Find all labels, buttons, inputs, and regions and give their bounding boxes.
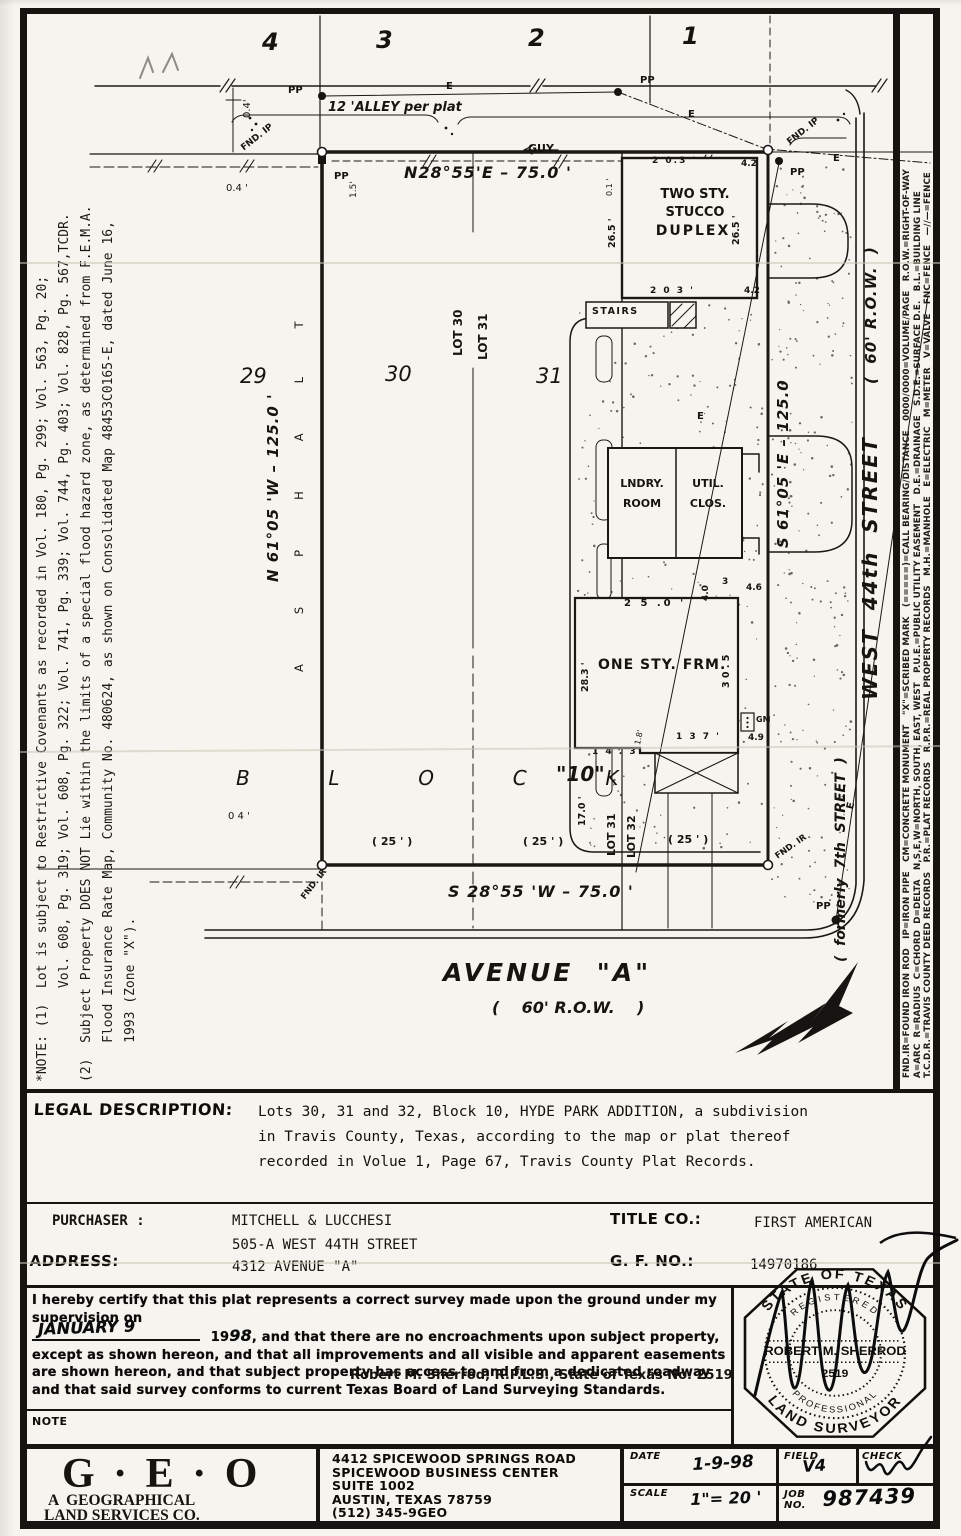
note-line: Vol. 608, Pg. 319; Vol. 608, Pg. 322; Vo… <box>54 52 76 1082</box>
e-label: E <box>697 412 704 422</box>
dim-265: 26.5 ' <box>608 218 618 248</box>
title-co-label: TITLE CO.: <box>610 1212 701 1227</box>
lot-number-31: 31 <box>536 366 563 387</box>
lot31-line-label: LOT 31 <box>477 314 489 360</box>
note-line: (2) Subject Property DOES NOT Lie within… <box>76 52 98 1082</box>
cert-year-handwritten: 98 <box>229 1326 252 1345</box>
dim-01: 0.1 ' <box>606 179 614 196</box>
fnd-ip-label: FND. IP <box>240 123 275 153</box>
title-co-value: FIRST AMERICAN <box>754 1216 872 1230</box>
lot-number-4: 4 <box>262 30 279 54</box>
date-value: 1-9-98 <box>692 1454 754 1474</box>
avenue-a-label: AVENUE "A" <box>443 960 651 985</box>
firm-address-line: 4412 SPICEWOOD SPRINGS ROAD <box>332 1452 576 1466</box>
address-value-1: 505-A WEST 44TH STREET <box>232 1238 417 1252</box>
field-value: V4 <box>802 1457 827 1475</box>
lot31-line-label: LOT 31 <box>606 813 617 856</box>
gf-no-label: G. F. NO.: <box>610 1254 694 1269</box>
lndry-label-2: ROOM <box>610 498 674 509</box>
scale-value: 1"= 20 ' <box>690 1490 762 1508</box>
geo-sub-2: LAND SERVICES CO. <box>44 1508 200 1524</box>
dim-04-bot: 0 4 ' <box>228 812 250 822</box>
legal-line: recorded in Volue 1, Page 67, Travis Cou… <box>258 1150 808 1175</box>
dim-42: 4.2 <box>741 160 757 169</box>
dim-46: 4.6 <box>746 584 762 593</box>
survey-plat-sheet: 43210.4'PPEPP12 'ALLEY per platEFND. IPF… <box>0 0 961 1536</box>
legal-description-section: LEGAL DESCRIPTION: Lots 30, 31 and 32, B… <box>0 1092 933 1202</box>
cert-date-blank: JANUARY 9 <box>32 1327 200 1341</box>
address-label: ADDRESS: <box>29 1254 119 1269</box>
dim-283: 28.3 ' <box>581 662 591 692</box>
firm-address-line: SPICEWOOD BUSINESS CENTER <box>332 1466 576 1480</box>
dim-170: 17.0 ' <box>578 796 588 826</box>
west-44th-row-label: ( 60' R.O.W. ) <box>864 246 879 384</box>
lot-number-1: 1 <box>682 24 699 48</box>
legal-line: in Travis County, Texas, according to th… <box>258 1125 808 1150</box>
date-label: DATE <box>630 1452 661 1462</box>
e-label: E <box>446 82 453 92</box>
pp-label: PP <box>816 902 831 912</box>
duplex-label-1: TWO STY. <box>640 188 750 201</box>
scale-label: SCALE <box>630 1489 668 1499</box>
legal-description-label: LEGAL DESCRIPTION: <box>33 1102 233 1118</box>
dim-40: 4.0 <box>702 585 711 601</box>
lot-width: ( 25 ' ) <box>523 836 563 847</box>
lot-width: ( 25 ' ) <box>372 836 412 847</box>
check-label: CHECK <box>862 1452 902 1462</box>
stairs-label: STAIRS <box>592 307 639 317</box>
fnd-ir-label: FND. IR <box>774 833 808 861</box>
surveyor-name-line: Robert M. Sherrod, R.P.L.S., State of Te… <box>350 1368 733 1383</box>
guy-label: GUY <box>528 143 554 154</box>
pp-label: PP <box>640 76 655 86</box>
one-sty-label: ONE STY. FRM. <box>598 658 726 672</box>
dim-49: 4.9 <box>748 734 764 743</box>
firm-address: 4412 SPICEWOOD SPRINGS ROAD SPICEWOOD BU… <box>332 1452 576 1520</box>
gm-label: GM <box>756 716 771 724</box>
legend: FND.IR=FOUND IRON ROD IP=IRON PIPE CM=CO… <box>902 36 934 1078</box>
address-value-2: 4312 AVENUE "A" <box>232 1260 358 1274</box>
util-label-1: UTIL. <box>678 478 738 489</box>
job-no-value: 987439 <box>822 1486 916 1510</box>
asphalt-label: ASPHALT <box>294 272 306 672</box>
lot30-line-label: LOT 30 <box>452 310 464 356</box>
dim-250: 2 5 .0 ' <box>624 599 686 609</box>
dim-18: 1.8' <box>634 729 645 745</box>
geo-logo: G · E · O <box>62 1453 261 1495</box>
bearing-top: N28°55'E – 75.0 ' <box>404 165 572 181</box>
dim-137: 1 3 7 ' <box>676 733 721 742</box>
purchaser-value: MITCHELL & LUCCHESI <box>232 1214 392 1228</box>
firm-address-line: SUITE 1002 <box>332 1479 576 1493</box>
util-label-2: CLOS. <box>678 498 738 509</box>
dim-305: 3 0 . 5 <box>722 655 732 688</box>
block-number: "10" <box>556 764 605 784</box>
note-line: Flood Insurance Rate Map, Community No. … <box>98 52 120 1082</box>
legend-line: FND.IR=FOUND IRON ROD IP=IRON PIPE CM=CO… <box>902 36 913 1078</box>
bearing-bottom: S 28°55 'W – 75.0 ' <box>448 884 634 900</box>
margin-notes: *NOTE: (1) Lot is subject to Restrictive… <box>32 52 142 1082</box>
note-line: *NOTE: (1) Lot is subject to Restrictive… <box>32 52 54 1082</box>
legal-description-text: Lots 30, 31 and 32, Block 10, HYDE PARK … <box>258 1100 808 1175</box>
dim-143: 1 4 . 3 <box>592 748 638 757</box>
dim-04-left: 0.4 ' <box>226 184 248 194</box>
dim-3: 3 <box>722 578 728 587</box>
gf-no-value: 14970186 <box>750 1258 817 1272</box>
avenue-a-row: ( 60' R.O.W. ) <box>492 1000 644 1016</box>
note-line: 1993 (Zone "X"). <box>120 52 142 1082</box>
dim-15: 1.5' <box>350 181 359 198</box>
pp-label: PP <box>790 168 805 178</box>
lot-number-30: 30 <box>385 364 412 385</box>
fnd-ir-label: FND. IR <box>300 868 329 902</box>
firm-address-line: AUSTIN, TEXAS 78759 <box>332 1493 576 1507</box>
formerly-7th-label: ( formerly 7th STREET ) <box>834 757 848 962</box>
lot-number-2: 2 <box>528 26 545 50</box>
parties-section: PURCHASER : MITCHELL & LUCCHESI 505-A WE… <box>0 1204 933 1286</box>
firm-address-line: (512) 345-9GEO <box>332 1506 576 1520</box>
e-label: E <box>833 154 840 164</box>
fnd-ip-label: FND. IP <box>786 117 821 147</box>
dim-203-bot: 2 0 3 ' <box>650 287 695 296</box>
legal-line: Lots 30, 31 and 32, Block 10, HYDE PARK … <box>258 1100 808 1125</box>
lot32-line-label: LOT 32 <box>626 815 637 858</box>
lot-width: ( 25 ' ) <box>668 834 708 845</box>
purchaser-label: PURCHASER : <box>52 1214 145 1228</box>
west-44th-street-label: WEST 44th STREET <box>860 436 880 700</box>
cert-date-handwritten: JANUARY 9 <box>38 1317 136 1338</box>
dim-42: 4.2 <box>744 287 760 296</box>
job-no-label: JOB NO. <box>784 1489 818 1511</box>
bearing-left: N 61°05 'W – 125.0 ' <box>266 393 281 582</box>
lndry-label-1: LNDRY. <box>610 478 674 489</box>
bearing-right: S 61°05 'E – 125.0 <box>776 379 791 548</box>
dim-265: 26.5 ' <box>732 215 742 245</box>
pp-label: PP <box>288 86 303 96</box>
alley-label: 12 'ALLEY per plat <box>328 101 462 114</box>
lot-number-29: 29 <box>240 366 267 387</box>
dim-04-top: 0.4' <box>243 99 253 118</box>
lot-number-3: 3 <box>376 28 393 52</box>
legend-line: A=ARC R=RADIUS C=CHORD D=DELTA N,S,E,W=N… <box>913 36 924 1078</box>
note-row-label: NOTE <box>32 1416 68 1427</box>
e-label: E <box>688 110 695 120</box>
cert-year-printed: 19 <box>211 1330 230 1345</box>
dim-203-top: 2 0.3 ' <box>652 157 697 166</box>
title-block: G · E · O A GEOGRAPHICAL LAND SERVICES C… <box>0 1449 933 1521</box>
pp-label: PP <box>334 172 349 182</box>
